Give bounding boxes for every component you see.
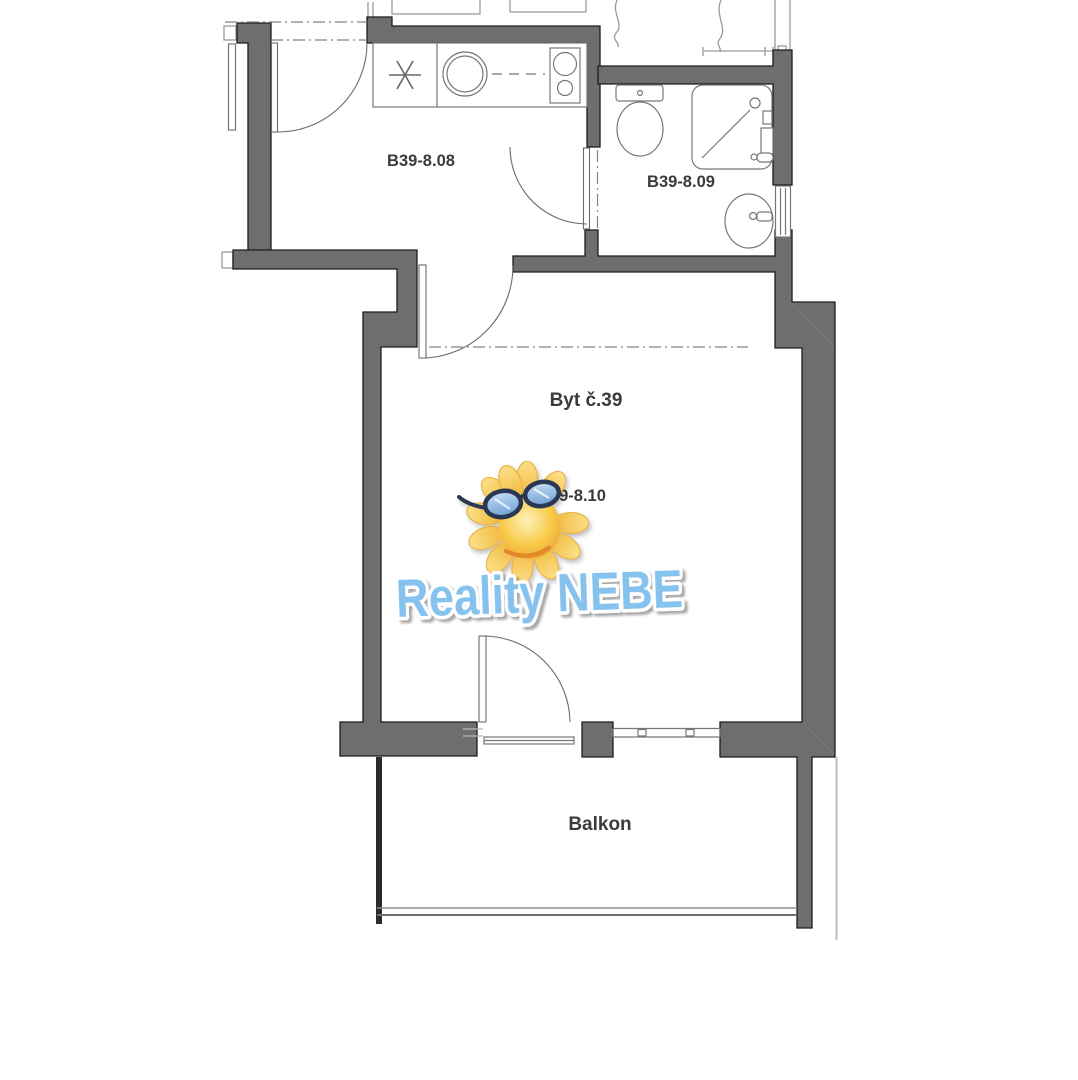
floorplan-canvas: B39-8.08 B39-8.09 Byt č.39 B39-8.10 Balk…	[0, 0, 1078, 1080]
brand-watermark: Reality NEBE	[395, 559, 684, 629]
apartment-label: Byt č.39	[550, 390, 623, 411]
toilet-icon	[616, 85, 663, 156]
wall	[582, 722, 613, 757]
kitchen-counter	[373, 43, 587, 107]
room-label-balcony: Balkon	[568, 814, 631, 835]
bathroom-fixtures	[616, 85, 773, 248]
basin-icon	[725, 194, 773, 248]
break-line	[614, 0, 619, 47]
floorplan-page: B39-8.08 B39-8.09 Byt č.39 B39-8.10 Balk…	[0, 0, 1078, 1080]
window	[776, 186, 791, 237]
wall	[233, 250, 477, 756]
main-room-door	[419, 265, 513, 358]
wall	[237, 23, 271, 252]
kitchen-entry-door	[272, 43, 368, 132]
shower-icon	[692, 85, 773, 169]
balcony-door	[479, 636, 574, 744]
balcony-side-wall	[376, 757, 382, 924]
room-label-bathroom: B39-8.09	[647, 173, 715, 191]
balcony	[376, 757, 837, 940]
doors	[272, 43, 590, 744]
balcony-window	[613, 729, 720, 738]
kitchen-bathroom-door	[510, 147, 590, 229]
stove-icon	[550, 48, 580, 103]
break-line	[718, 0, 722, 52]
room-label-kitchen: B39-8.08	[387, 152, 455, 170]
window	[229, 44, 236, 130]
